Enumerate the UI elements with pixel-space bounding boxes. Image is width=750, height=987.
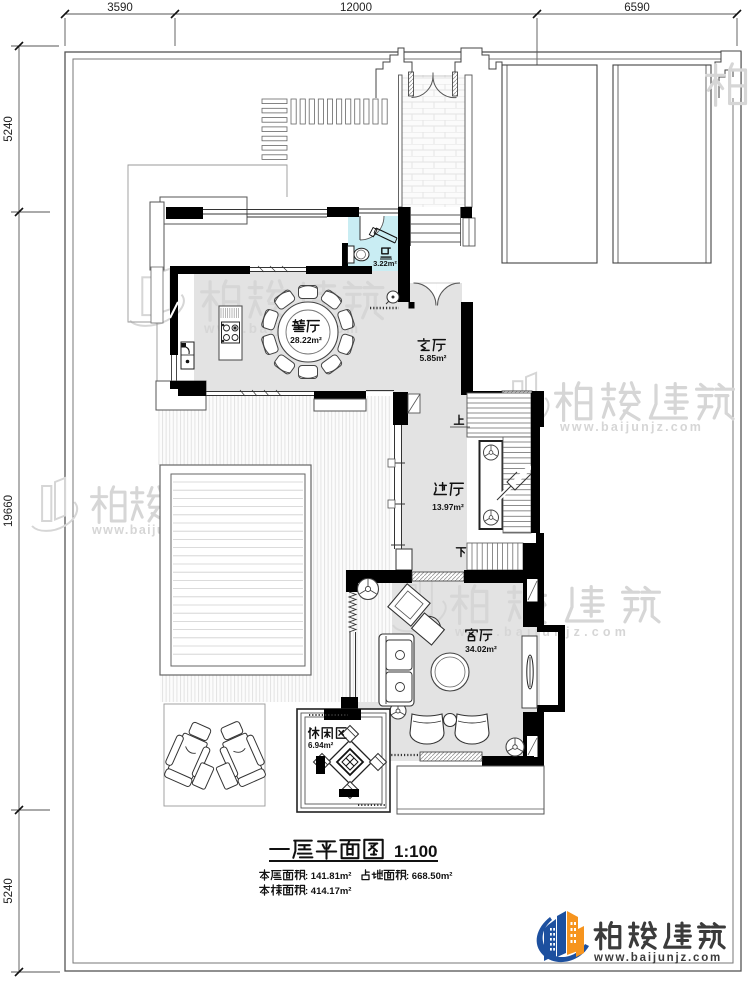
svg-text:6590: 6590 bbox=[624, 2, 650, 14]
svg-text:: 414.17m²: : 414.17m² bbox=[305, 886, 351, 897]
svg-text:12000: 12000 bbox=[340, 2, 372, 14]
svg-text:1:100: 1:100 bbox=[394, 842, 437, 861]
svg-text:: 668.50m²: : 668.50m² bbox=[406, 871, 452, 882]
svg-text:www.baijunjz.com: www.baijunjz.com bbox=[559, 420, 703, 434]
svg-text:13.97m²: 13.97m² bbox=[432, 502, 464, 512]
svg-text:5.85m²: 5.85m² bbox=[420, 353, 447, 363]
svg-text:34.02m²: 34.02m² bbox=[465, 644, 497, 654]
svg-text:3.22m²: 3.22m² bbox=[373, 259, 397, 268]
svg-text:5240: 5240 bbox=[3, 116, 15, 142]
svg-text:www.baijunjz.com: www.baijunjz.com bbox=[593, 952, 722, 964]
svg-text:: 141.81m²: : 141.81m² bbox=[305, 871, 351, 882]
svg-text:5240: 5240 bbox=[3, 878, 15, 904]
svg-text:28.22m²: 28.22m² bbox=[290, 335, 322, 345]
svg-text:19660: 19660 bbox=[3, 495, 15, 527]
svg-text:6.94m²: 6.94m² bbox=[308, 741, 334, 750]
svg-text:3590: 3590 bbox=[107, 2, 133, 14]
